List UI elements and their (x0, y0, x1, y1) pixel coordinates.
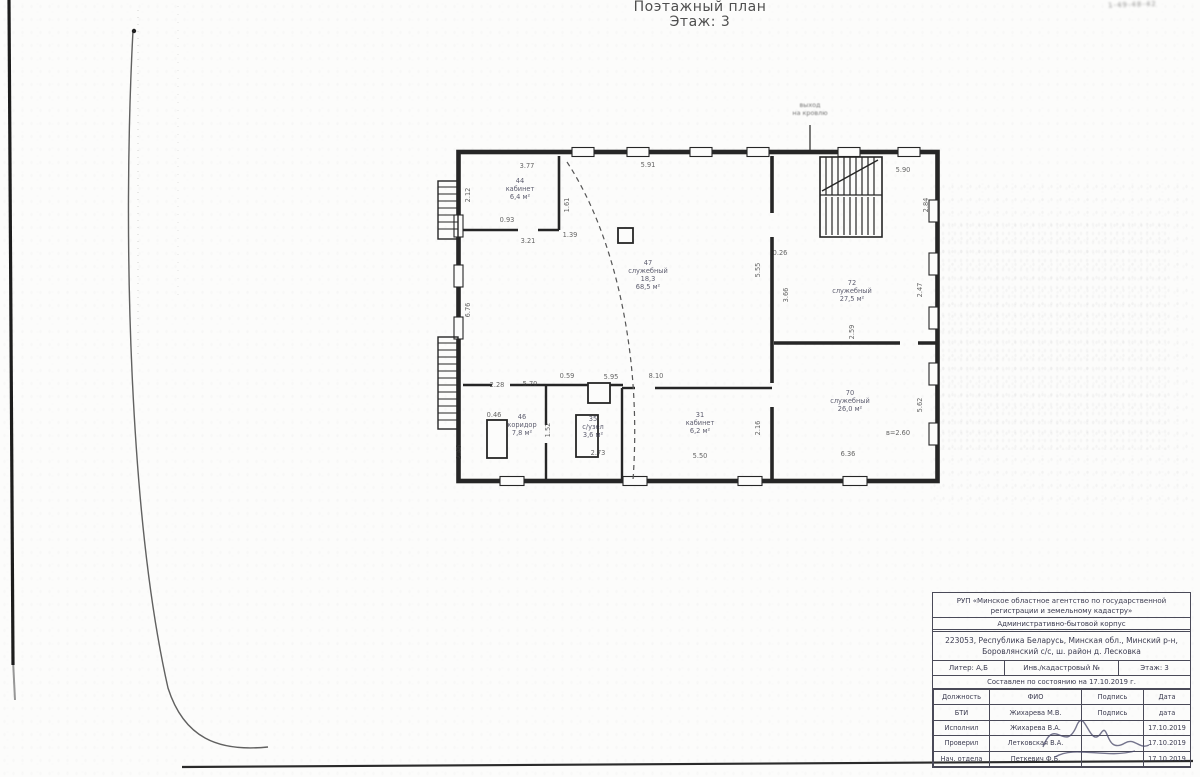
stamp-signature-table: ДолжностьФИОПодписьДатаБТИЖихарева М.В.П… (933, 689, 1191, 767)
dimension-labels: 3.775.915.901.612.122.840.933.211.390.26… (455, 161, 930, 460)
left-border-fade (13, 660, 15, 700)
stamp-table-cell: Должность (934, 690, 990, 705)
stamp-table-cell: Нач. отдела (934, 751, 990, 766)
stamp-cadastral: Инв./кадастровый № (1005, 661, 1119, 675)
stamp-table-cell: ФИО (990, 690, 1082, 705)
stamp-table-cell: Дата (1144, 690, 1191, 705)
dimension-label: 1.52 (544, 423, 552, 438)
stamp-table-cell: 17.10.2019 (1144, 736, 1191, 751)
title-block: РУП «Минское областное агентство по госу… (932, 592, 1191, 768)
scan-noise-mid (940, 220, 1170, 450)
stamp-table-cell: Жихарева В.А. (990, 720, 1082, 735)
entrance-note: выходна кровлю (792, 101, 828, 117)
stamp-table-cell: Подпись (1082, 705, 1144, 720)
room-label: 6,2 м² (690, 427, 711, 435)
stamp-table-cell (1082, 736, 1144, 751)
room-label: с/узел (582, 423, 604, 431)
lower-left-walls (463, 385, 772, 480)
stamp-table-cell: Подпись (1082, 690, 1144, 705)
dimension-label: 0.26 (773, 249, 788, 257)
dimension-label: в=2.60 (886, 429, 910, 437)
dimension-label: 3.77 (520, 162, 535, 170)
stamp-table-cell: 17.10.2019 (1144, 720, 1191, 735)
room-label: 68,5 м² (636, 283, 661, 291)
crease-dot (132, 29, 136, 33)
left-border-line (9, 0, 13, 665)
room-label: 46 (518, 413, 526, 421)
dimension-label: 0.93 (500, 216, 515, 224)
stamp-table-cell: Проверил (934, 736, 990, 751)
entrance-note-line: выход (800, 101, 822, 109)
room-label: 70 (846, 389, 854, 397)
dimension-label: 5.90 (896, 166, 911, 174)
dimension-label: 2.46 (455, 445, 463, 460)
room-label: 72 (848, 279, 856, 287)
stamp-address-line1: 223053, Республика Беларусь, Минская обл… (945, 635, 1178, 646)
room-label: 26,0 м² (838, 405, 863, 413)
dimension-label: 0.46 (487, 411, 502, 419)
room-label: 31 (696, 411, 704, 419)
room-labels: 44кабинет6,4 м²47служебный18,368,5 м²72с… (506, 177, 872, 439)
room-label: служебный (628, 267, 668, 275)
room-label: 7,8 м² (512, 429, 533, 437)
dimension-label: 5.95 (604, 373, 619, 381)
plan-title: Поэтажный план (560, 0, 840, 15)
dimension-label: 8.10 (649, 372, 664, 380)
dimension-label: 2.12 (464, 188, 472, 203)
dimension-label: 6.76 (464, 303, 472, 318)
stamp-table-cell (1082, 720, 1144, 735)
stamp-org-line1: РУП «Минское областное агентство по госу… (957, 596, 1166, 606)
stamp-address: 223053, Республика Беларусь, Минская обл… (933, 632, 1190, 661)
room-label: 6,4 м² (510, 193, 531, 201)
stamp-table-cell: 17.10.2019 (1144, 751, 1191, 766)
dimension-label: 5.91 (641, 161, 656, 169)
stamp-date-line: Составлен по состоянию на 17.10.2019 г. (933, 676, 1190, 689)
dimension-label: 1.39 (563, 231, 578, 239)
dimension-label: 5.50 (693, 452, 708, 460)
stamp-liter-row: Литер: А,Б Инв./кадастровый № Этаж: 3 (933, 661, 1190, 676)
room-label: 44 (516, 177, 524, 185)
dimension-label: 1.61 (563, 198, 571, 213)
stamp-table-cell: дата (1144, 705, 1191, 720)
dimension-label: 5.70 (523, 380, 538, 388)
stamp-organization: РУП «Минское областное агентство по госу… (933, 593, 1190, 618)
stamp-table-row: БТИЖихарева М.В.Подписьдата (934, 705, 1191, 720)
room-label: служебный (832, 287, 872, 295)
dimension-label: 2.59 (848, 325, 856, 340)
page-crease-curve (128, 30, 268, 748)
stairs-hatch (820, 157, 882, 237)
room-label: 18,3 (641, 275, 656, 283)
dimension-label: 2.28 (490, 381, 505, 389)
stamp-object-name: Административно-бытовой корпус (933, 618, 1190, 632)
room-label: 47 (644, 259, 652, 267)
stamp-table-cell: Жихарева М.В. (990, 705, 1082, 720)
dimension-label: 5.62 (916, 398, 924, 413)
dimension-label: 5.55 (754, 263, 762, 278)
stamp-table-cell: Летковская В.А. (990, 736, 1082, 751)
stamp-liter: Литер: А,Б (933, 661, 1005, 675)
dimension-label: 2.84 (922, 198, 930, 213)
room-label: кабинет (506, 185, 535, 193)
dimension-label: 2.47 (916, 283, 924, 298)
floor-label: Этаж: 3 (560, 15, 840, 30)
stamp-table-cell (1082, 751, 1144, 766)
room-label: 27,5 м² (840, 295, 865, 303)
room-label: 35 (589, 415, 597, 423)
room-label: коридор (507, 421, 536, 429)
stamp-table-cell: БТИ (934, 705, 990, 720)
stamp-floor: Этаж: 3 (1119, 661, 1190, 675)
floor-plan-drawing: выходна кровлю 3.775.915.901.612.122.840… (430, 95, 950, 490)
stamp-table-header-row: ДолжностьФИОПодписьДата (934, 690, 1191, 705)
dimension-label: 6.36 (841, 450, 856, 458)
room-label: служебный (830, 397, 870, 405)
stamp-address-line2: Боровлянский с/с, ш. район д. Лесковка (982, 646, 1141, 657)
stamp-table-row: ИсполнилЖихарева В.А.17.10.2019 (934, 720, 1191, 735)
dimension-label: 0.59 (560, 372, 575, 380)
stamp-table-row: ПроверилЛетковская В.А.17.10.2019 (934, 736, 1191, 751)
corner-note: 1-49-48-42 (1108, 0, 1198, 10)
entrance-note-line: на кровлю (792, 109, 828, 117)
room-label: кабинет (686, 419, 715, 427)
dimension-label: 2.16 (754, 421, 762, 436)
stamp-org-line2: регистрации и земельному кадастру» (991, 606, 1133, 616)
page-title: Поэтажный план Этаж: 3 (560, 0, 840, 30)
stamp-table-cell: Петкевич Ф.Б. (990, 751, 1082, 766)
stamp-table-row: Нач. отделаПеткевич Ф.Б.17.10.2019 (934, 751, 1191, 766)
dimension-label: 3.21 (521, 237, 536, 245)
stamp-table-cell: Исполнил (934, 720, 990, 735)
dimension-label: 3.66 (782, 288, 790, 303)
scan-noise-right (930, 180, 1190, 510)
room-label: 3,6 м² (583, 431, 604, 439)
dimension-label: 2.73 (591, 449, 606, 457)
